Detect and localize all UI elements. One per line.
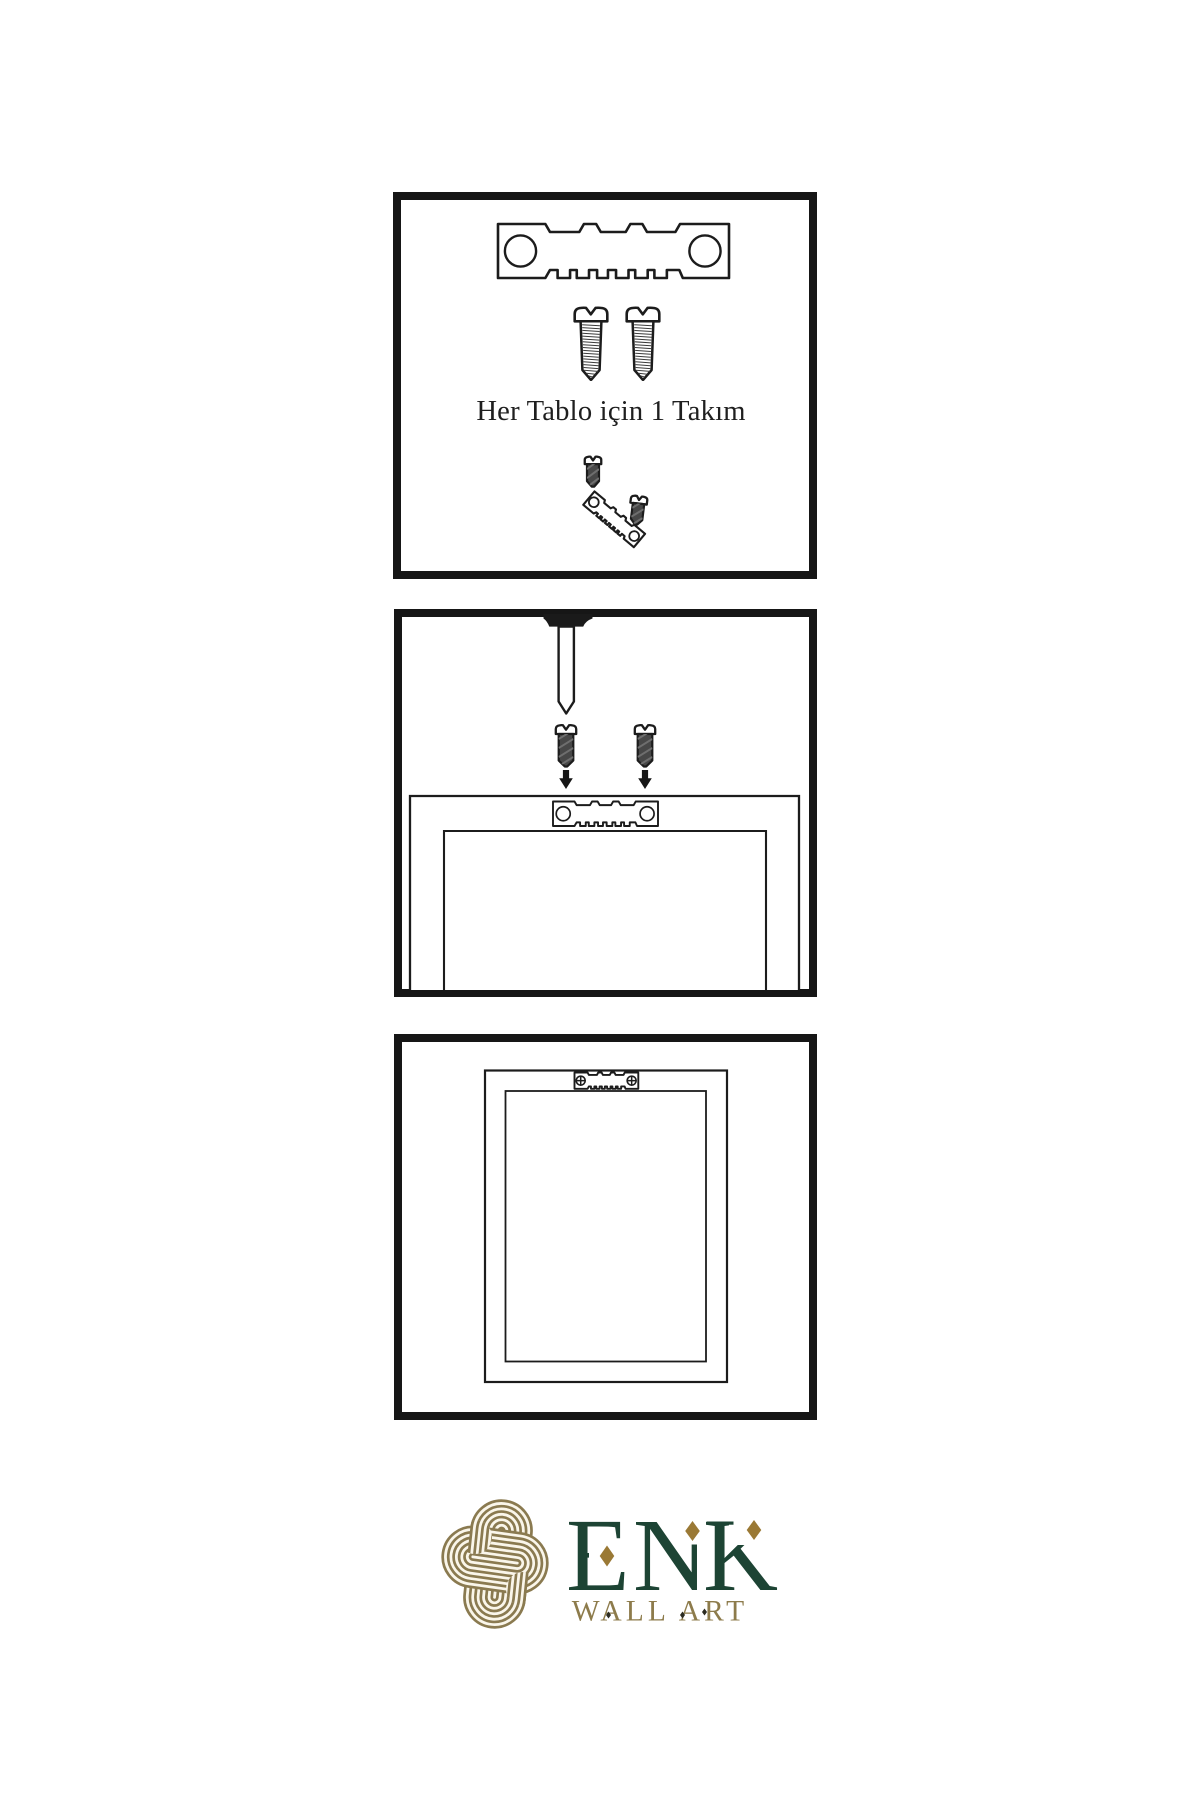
svg-text:WALL ART: WALL ART <box>572 1596 749 1628</box>
svg-text:Her Tablo için 1 Takım: Her Tablo için 1 Takım <box>476 396 745 427</box>
